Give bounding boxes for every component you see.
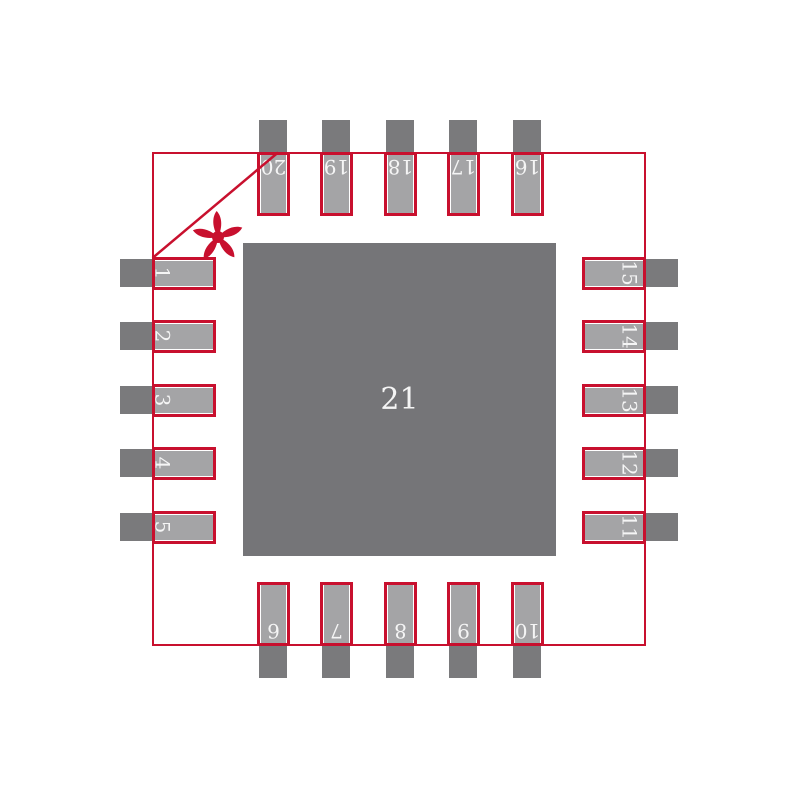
pad-stub [449,644,477,678]
pad-6: 6 [257,582,290,646]
pad-9: 9 [447,582,480,646]
pad-10: 10 [511,582,544,646]
pad-stub [513,120,541,154]
pad-19: 19 [320,152,353,216]
pad-number-label: 11 [619,514,639,539]
pad-3: 3 [152,384,216,417]
pad-number-label: 3 [152,394,172,407]
pad-stub [322,644,350,678]
pad-1: 1 [152,257,216,290]
pad-number-label: 6 [260,621,287,641]
pad-stub [120,513,154,541]
pad-stub [644,513,678,541]
pad-stub [120,259,154,287]
pad-stub [120,322,154,350]
pad-number-label: 7 [323,621,350,641]
pad-number-label: 9 [450,621,477,641]
thermal-pad-21: 21 [243,243,556,556]
pad-stub [120,449,154,477]
pad-5: 5 [152,511,216,544]
pad-12: 12 [582,447,646,480]
pad-stub [644,386,678,414]
pad-8: 8 [384,582,417,646]
pad-stub [644,322,678,350]
pad-14: 14 [582,320,646,353]
pad-16: 16 [511,152,544,216]
pad-number-label: 4 [152,457,172,470]
pad-number-label: 18 [387,157,414,177]
pad-number-label: 16 [514,157,541,177]
thermal-pad-label: 21 [380,382,418,417]
pad-7: 7 [320,582,353,646]
pad-stub [644,259,678,287]
pad-number-label: 12 [619,450,639,475]
pad-stub [322,120,350,154]
pad-11: 11 [582,511,646,544]
pad-4: 4 [152,447,216,480]
pad-stub [644,449,678,477]
pad-stub [386,644,414,678]
pad-number-label: 17 [450,157,477,177]
pad-15: 15 [582,257,646,290]
pad-number-label: 8 [387,621,414,641]
pad-18: 18 [384,152,417,216]
pad-number-label: 2 [152,330,172,343]
pad-stub [449,120,477,154]
pad-number-label: 10 [514,621,541,641]
pad-number-label: 15 [619,260,639,285]
pad-2: 2 [152,320,216,353]
pad-number-label: 20 [260,157,287,177]
pad-stub [386,120,414,154]
footprint-canvas: 1234567891011121314151617181920 21 [0,0,800,800]
pad-number-label: 19 [323,157,350,177]
pad-13: 13 [582,384,646,417]
pad-number-label: 1 [152,267,172,280]
pad-stub [513,644,541,678]
pad-stub [259,120,287,154]
pad-stub [259,644,287,678]
pad-20: 20 [257,152,290,216]
pad-stub [120,386,154,414]
pad-number-label: 14 [619,323,639,348]
pad-number-label: 13 [619,387,639,412]
pad-number-label: 5 [152,521,172,534]
pad-17: 17 [447,152,480,216]
